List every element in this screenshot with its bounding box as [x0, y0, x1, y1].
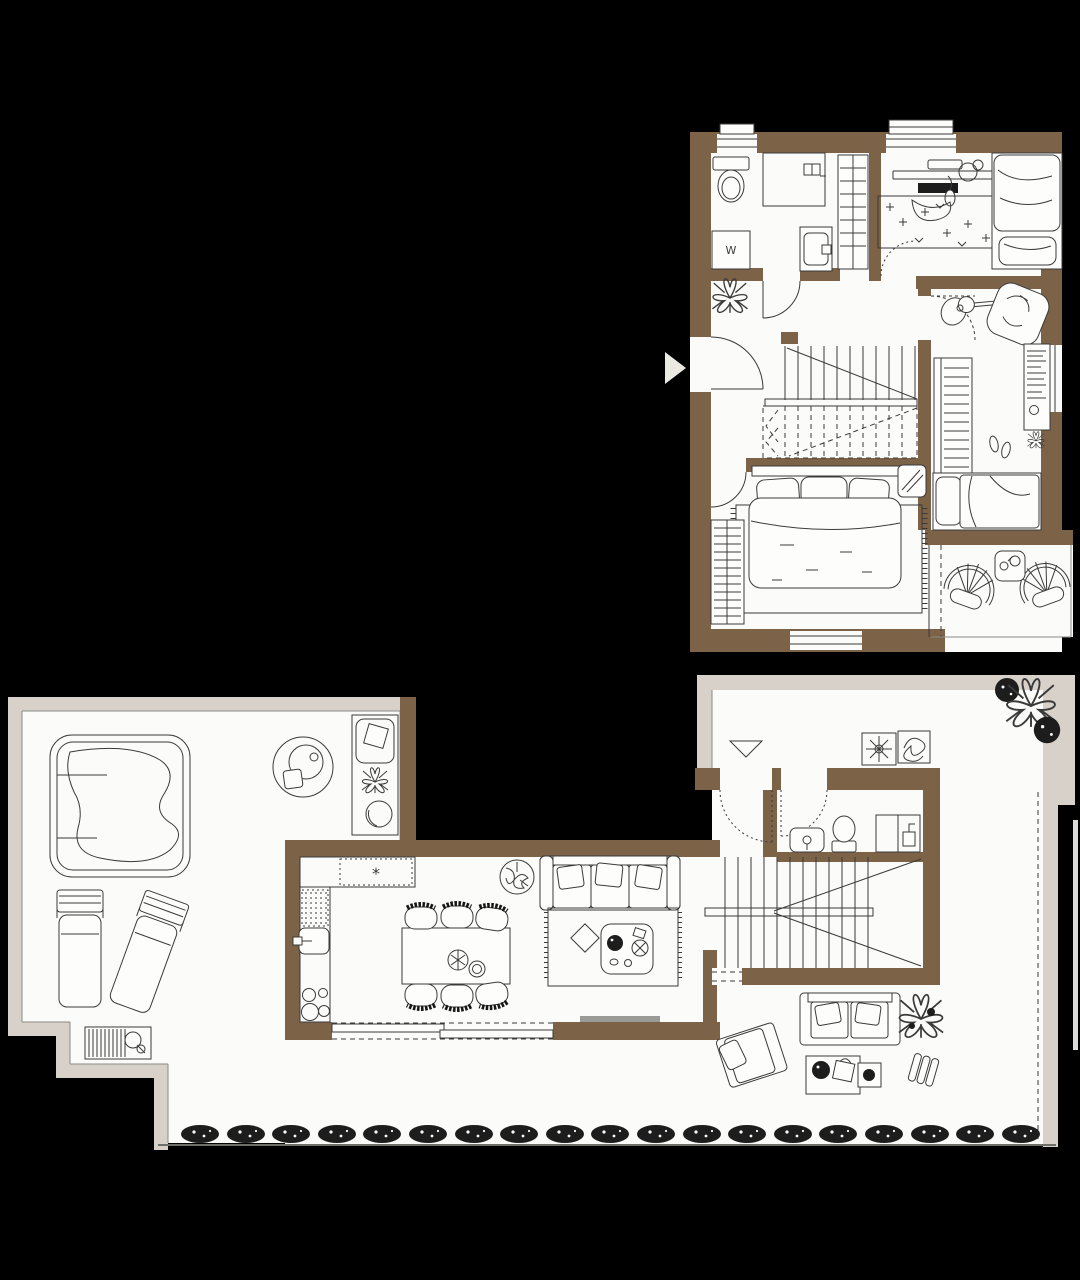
dining-area — [402, 903, 510, 1009]
sun-lounger — [57, 890, 103, 1007]
kids-bed — [992, 153, 1062, 269]
bathroom-sink — [800, 227, 832, 271]
washing-machine: W — [712, 231, 750, 269]
vanity — [790, 828, 824, 852]
floor-plan-drawing: W — [0, 0, 1080, 1280]
sofa — [540, 856, 680, 910]
bush-icon — [995, 678, 1019, 702]
washing-machine-label: W — [726, 244, 737, 257]
cooktop-label: * — [372, 864, 380, 883]
double-bed — [749, 466, 902, 588]
single-bed — [933, 473, 1041, 530]
window-sill — [720, 124, 754, 134]
balcony-table — [995, 551, 1025, 581]
wardrobe — [934, 358, 972, 474]
threshold-step — [580, 1016, 660, 1022]
mirror — [898, 465, 926, 497]
entry-arrow-icon — [665, 352, 686, 384]
bush-icon — [1034, 717, 1060, 743]
coffee-table — [601, 924, 653, 974]
radiator — [711, 520, 744, 624]
outdoor-sofa — [800, 993, 900, 1045]
upper-floor-plan: W — [665, 120, 1074, 652]
hall-closet — [838, 155, 868, 269]
floor-plan-canvas: W — [0, 0, 1080, 1280]
stairs-window — [712, 968, 742, 985]
toilet — [832, 816, 856, 852]
ground-floor-plan: * — [8, 675, 1078, 1150]
